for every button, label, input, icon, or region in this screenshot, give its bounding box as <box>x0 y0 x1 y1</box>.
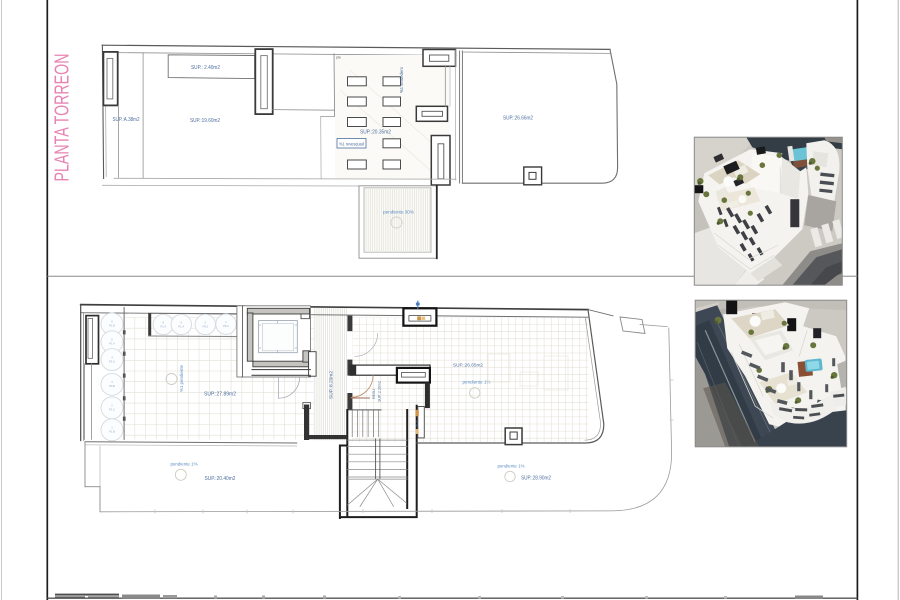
svg-text:RESU: RESU <box>372 389 376 399</box>
svg-text:SUP.:8.20m2: SUP.:8.20m2 <box>329 371 334 399</box>
svg-text:SUP.: 2.40m2: SUP.: 2.40m2 <box>191 65 220 71</box>
svg-text:SUP.:26.66m2: SUP.:26.66m2 <box>503 116 533 122</box>
svg-text:P1.A: P1.A <box>415 420 419 427</box>
svg-text:pendiente 1%: pendiente 1% <box>171 461 198 466</box>
svg-text:PLANTA TORREON: PLANTA TORREON <box>51 54 74 182</box>
svg-text:P8.A: P8.A <box>223 324 229 328</box>
svg-text:P2.U: P2.U <box>109 359 115 363</box>
svg-text:SUP.:2.30m2: SUP.:2.30m2 <box>378 381 382 402</box>
svg-text:P1.A: P1.A <box>178 324 184 328</box>
svg-text:SUP.:27.89m2: SUP.:27.89m2 <box>204 391 236 397</box>
svg-text:P0.B: P0.B <box>109 384 115 388</box>
svg-text:P1.B: P1.B <box>109 324 115 328</box>
svg-text:P1.C: P1.C <box>109 408 115 412</box>
svg-text:SUP.:20.40m2: SUP.:20.40m2 <box>205 476 236 482</box>
svg-text:SUP.:A.38m2: SUP.:A.38m2 <box>113 117 140 123</box>
svg-text:%1 revesquad: %1 revesquad <box>339 142 364 147</box>
svg-text:SUP.:26.65m2: SUP.:26.65m2 <box>453 363 483 369</box>
svg-text:P2.A: P2.A <box>160 324 166 328</box>
svg-text:pte: pte <box>336 56 341 60</box>
svg-text:%1 pendiente: %1 pendiente <box>179 364 184 392</box>
svg-text:SUP.:19.60m2: SUP.:19.60m2 <box>190 118 220 124</box>
svg-text:P8.0: P8.0 <box>203 324 209 328</box>
svg-text:%1 tendedero: %1 tendedero <box>399 66 404 93</box>
svg-text:SUP.:20.35m2: SUP.:20.35m2 <box>360 130 391 136</box>
svg-text:P1.A: P1.A <box>109 342 115 346</box>
svg-text:P1.B: P1.B <box>109 430 115 434</box>
svg-text:pendiente 1%: pendiente 1% <box>498 463 525 468</box>
svg-text:SUP.:28.90m2: SUP.:28.90m2 <box>521 475 551 481</box>
svg-text:pendiente 30%: pendiente 30% <box>383 210 415 216</box>
svg-text:pendiente 1%: pendiente 1% <box>463 380 491 385</box>
